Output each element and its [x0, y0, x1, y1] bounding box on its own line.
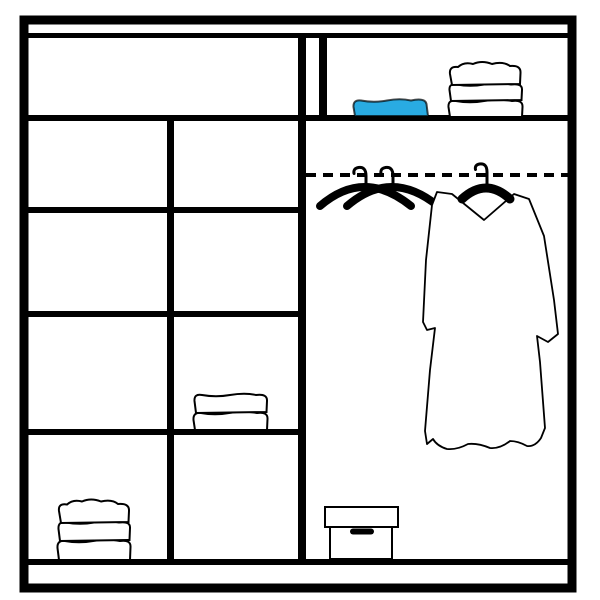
shelf-row-line-1: [28, 207, 306, 213]
shelf-row-line-2: [28, 311, 306, 317]
white-towel-stack-middle[interactable]: [193, 394, 267, 430]
towel-layer: [450, 62, 521, 85]
towel-layer: [57, 540, 130, 560]
main-partition: [298, 36, 306, 562]
towel-layer: [448, 100, 522, 117]
box-handle: [350, 529, 374, 535]
towel-layer: [59, 500, 129, 524]
storage-box[interactable]: [325, 507, 398, 559]
wardrobe-diagram: [0, 0, 600, 600]
blue-folded-towel[interactable]: [353, 99, 428, 116]
top-shelf-divider: [319, 36, 327, 121]
towel-layer: [193, 412, 267, 430]
towel-layer: [449, 83, 522, 101]
towel-layer: [58, 521, 130, 541]
left-grid-divider: [167, 115, 174, 562]
towel-layer: [194, 394, 267, 413]
hanging-robe[interactable]: [423, 192, 558, 449]
box-lid: [325, 507, 398, 527]
white-towel-stack-top-shelf[interactable]: [448, 62, 522, 117]
wardrobe-diagram-canvas: [0, 0, 600, 600]
white-towel-stack-bottom[interactable]: [57, 500, 130, 561]
